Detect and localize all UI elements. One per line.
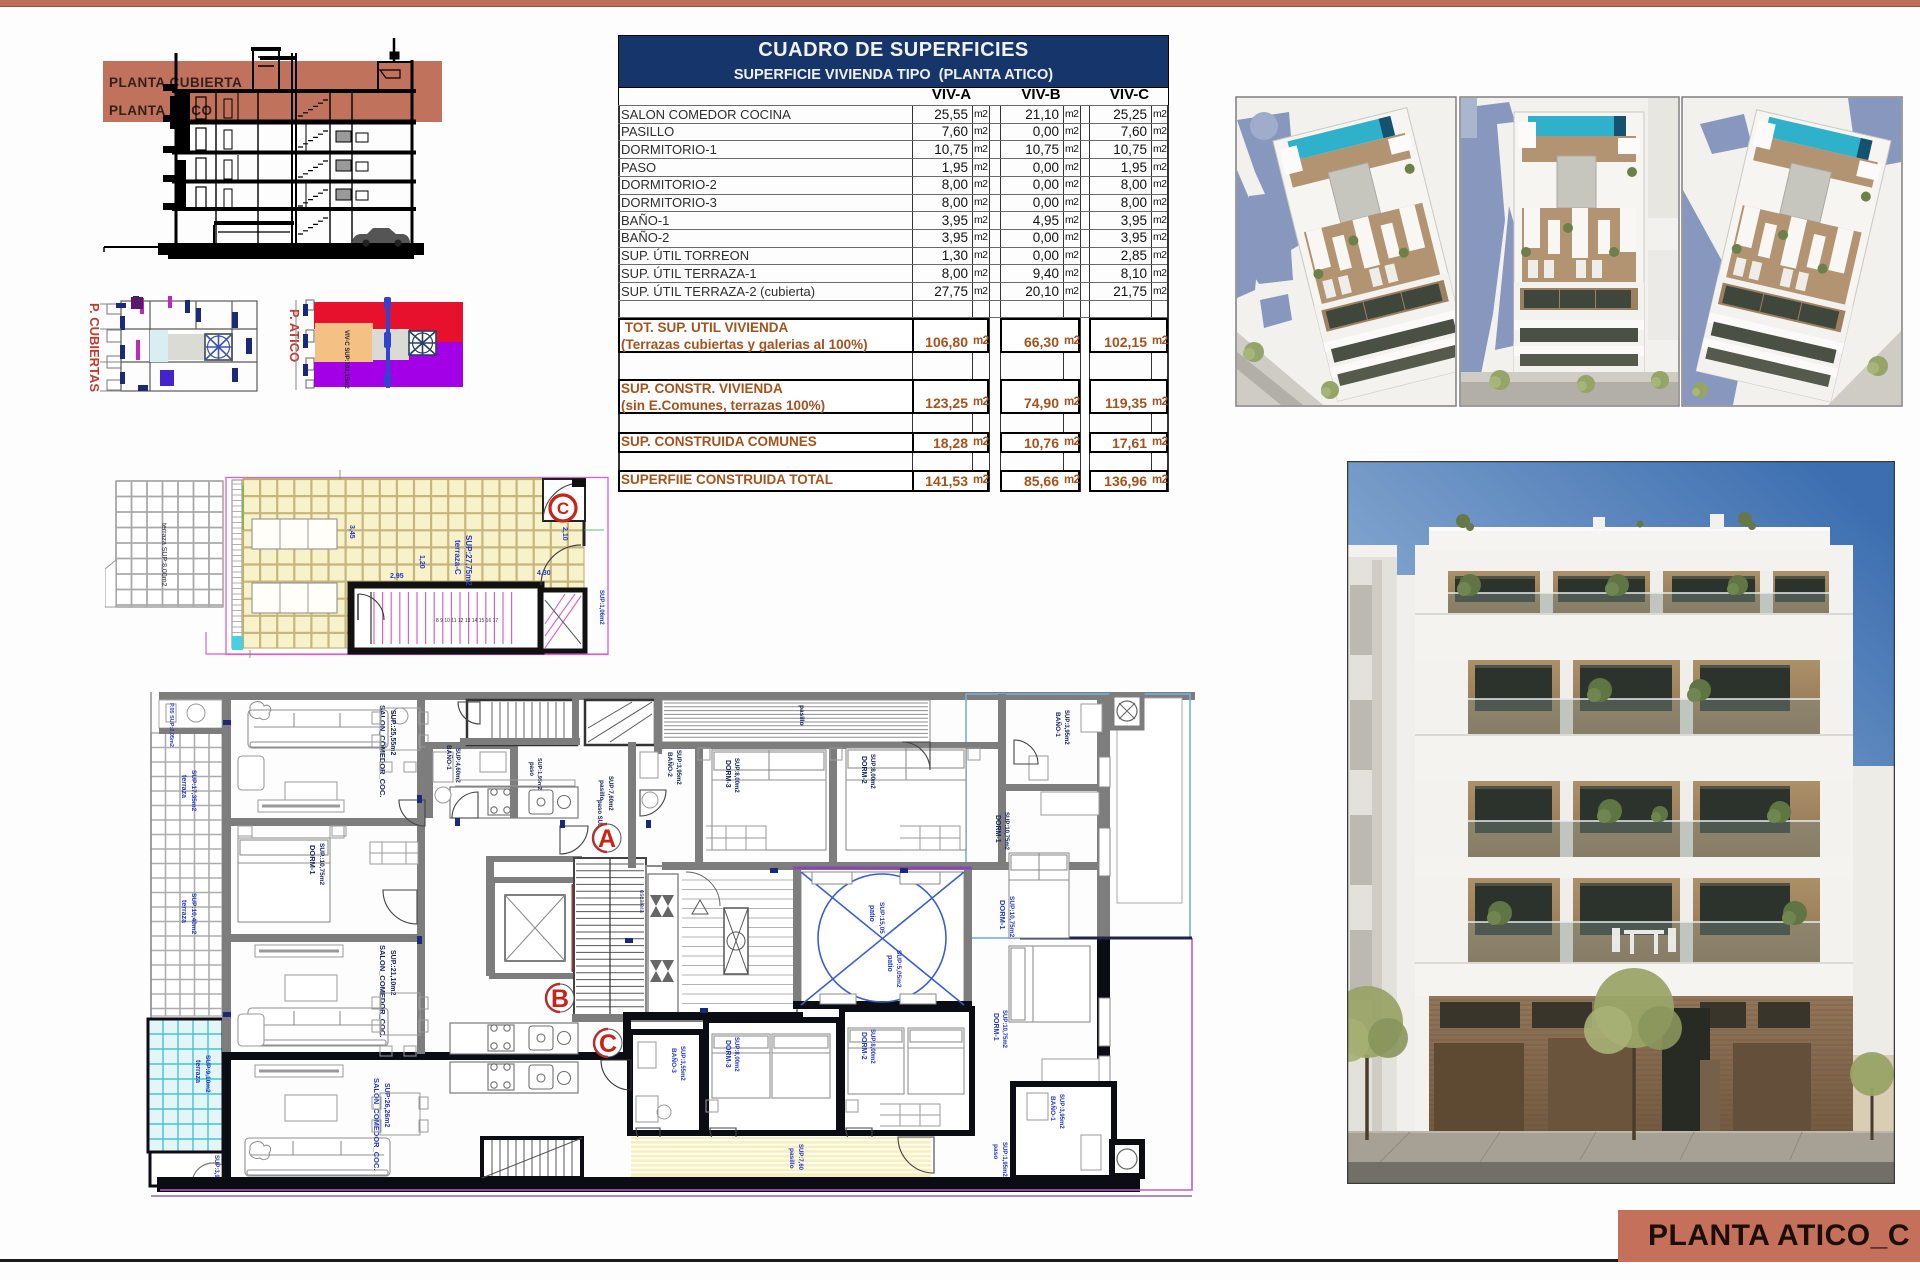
svg-text:SUP:26,26m2: SUP:26,26m2 xyxy=(383,1083,390,1127)
svg-text:SUP:4,60m2: SUP:4,60m2 xyxy=(454,748,460,783)
svg-text:SUP:27,75m2: SUP:27,75m2 xyxy=(464,535,473,586)
svg-text:SUP:8,00m2: SUP:8,00m2 xyxy=(733,1037,739,1072)
svg-text:SUP:1,95m2: SUP:1,95m2 xyxy=(536,758,542,790)
svg-text:P.05 SUP:2,05m2: P.05 SUP:2,05m2 xyxy=(168,703,174,747)
svg-text:SUP:17,35m2: SUP:17,35m2 xyxy=(190,770,197,812)
svg-text:SUP.:25,55m2: SUP.:25,55m2 xyxy=(389,710,396,756)
svg-text:paso: paso xyxy=(528,762,534,776)
svg-text:SUP:3,95m2: SUP:3,95m2 xyxy=(1063,710,1069,745)
svg-text:B: B xyxy=(551,985,569,1013)
svg-text:pasillo: pasillo xyxy=(788,1148,795,1169)
svg-text:DORM-1: DORM-1 xyxy=(994,815,1001,843)
svg-text:terraza-C: terraza-C xyxy=(453,540,462,575)
svg-text:SUP:7,60m2: SUP:7,60m2 xyxy=(607,776,613,811)
svg-text:BAÑO-1: BAÑO-1 xyxy=(445,745,454,770)
svg-text:SUP:1,95m2: SUP:1,95m2 xyxy=(1001,1142,1007,1177)
svg-text:SUP:7,60: SUP:7,60 xyxy=(797,1144,803,1171)
svg-text:SUP:10,75m2: SUP:10,75m2 xyxy=(1001,1010,1007,1049)
svg-text:P. ATICO: P. ATICO xyxy=(287,309,302,362)
svg-text:pasillo: pasillo xyxy=(798,705,805,726)
svg-text:A: A xyxy=(598,825,616,853)
svg-text:patio: patio xyxy=(868,905,875,922)
svg-text:BAÑO-3: BAÑO-3 xyxy=(670,1048,679,1073)
svg-text:DORM-1: DORM-1 xyxy=(308,845,317,875)
svg-text:DORM-1: DORM-1 xyxy=(992,1013,999,1041)
svg-text:SUP:15,05: SUP:15,05 xyxy=(878,902,885,934)
svg-text:SUP:10,40m2: SUP:10,40m2 xyxy=(190,893,197,935)
svg-text:SUP:8,00m2: SUP:8,00m2 xyxy=(869,1029,875,1064)
svg-text:SUP:5,05m2: SUP:5,05m2 xyxy=(895,950,902,988)
svg-text:pasillo: pasillo xyxy=(598,780,605,801)
svg-text:SUP:3,95m2: SUP:3,95m2 xyxy=(1058,1094,1064,1129)
svg-text:SUP:10,75m2: SUP:10,75m2 xyxy=(1003,812,1009,851)
svg-text:C: C xyxy=(557,499,569,518)
svg-text:terraza: terraza xyxy=(180,775,187,798)
svg-text:escalera: escalera xyxy=(638,890,644,913)
svg-text:paso: paso xyxy=(992,1144,999,1159)
svg-text:SALON_COMEDOR_COC.: SALON_COMEDOR_COC. xyxy=(378,705,387,798)
svg-text:DORM-2: DORM-2 xyxy=(860,1032,867,1060)
svg-text:DORM-3: DORM-3 xyxy=(724,1040,731,1068)
svg-text:VIV-C SUP:102,15m2: VIV-C SUP:102,15m2 xyxy=(343,330,349,389)
svg-text:SUP:8,00m2: SUP:8,00m2 xyxy=(733,758,739,793)
svg-text:SUP:10,75m2: SUP:10,75m2 xyxy=(1008,896,1015,938)
svg-text:SUP.:10,75m2: SUP.:10,75m2 xyxy=(318,843,325,886)
svg-text:8 9 10 11 12 13 14 15 16 17: 8 9 10 11 12 13 14 15 16 17 xyxy=(436,618,498,624)
svg-text:SUP:9,10m2: SUP:9,10m2 xyxy=(204,1055,211,1093)
svg-text:patio: patio xyxy=(886,955,893,972)
svg-text:2,95: 2,95 xyxy=(390,573,404,580)
svg-text:3,45: 3,45 xyxy=(348,525,355,539)
svg-text:terraza SUP:8,00m2: terraza SUP:8,00m2 xyxy=(160,523,167,587)
svg-text:1,20: 1,20 xyxy=(418,555,425,569)
svg-text:SUP.:21,10m2: SUP.:21,10m2 xyxy=(389,950,396,996)
svg-text:P. CUBIERTAS: P. CUBIERTAS xyxy=(87,303,102,392)
svg-text:BAÑO-1: BAÑO-1 xyxy=(1049,1096,1058,1121)
svg-text:DORM-3: DORM-3 xyxy=(724,760,731,788)
svg-text:DORM-2: DORM-2 xyxy=(860,756,867,784)
svg-text:SUP:3,55m2: SUP:3,55m2 xyxy=(679,1046,685,1081)
svg-text:SALON_COMEDOR_COC.: SALON_COMEDOR_COC. xyxy=(378,945,387,1038)
svg-text:PLANTA ATICO: PLANTA ATICO xyxy=(109,103,213,118)
svg-text:4,30: 4,30 xyxy=(537,570,551,577)
svg-text:BAÑO-1: BAÑO-1 xyxy=(1054,712,1063,737)
svg-text:terraza: terraza xyxy=(194,1060,201,1083)
svg-text:terraza: terraza xyxy=(180,900,187,923)
svg-text:2,10: 2,10 xyxy=(561,527,568,541)
svg-text:SUP:3,95m2: SUP:3,95m2 xyxy=(675,750,681,785)
svg-text:C: C xyxy=(599,1030,617,1058)
svg-text:BAÑO-2: BAÑO-2 xyxy=(666,752,675,777)
svg-text:DORM-1: DORM-1 xyxy=(998,900,1007,930)
svg-text:SUP:1,06m2: SUP:1,06m2 xyxy=(598,590,604,625)
svg-text:SUP:8,00m2: SUP:8,00m2 xyxy=(869,754,875,789)
